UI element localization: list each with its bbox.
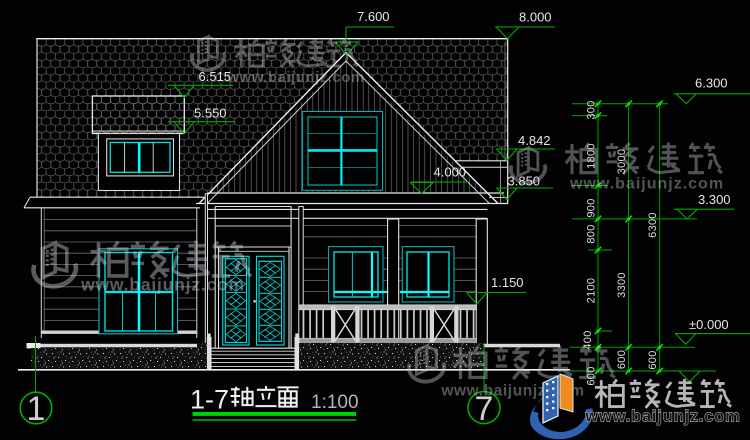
svg-text:6300: 6300	[647, 212, 659, 238]
svg-text:600: 600	[647, 350, 659, 369]
svg-text:1.150: 1.150	[491, 275, 524, 290]
svg-text:4.842: 4.842	[518, 133, 551, 148]
svg-text:±0.000: ±0.000	[689, 317, 729, 332]
svg-text:5.550: 5.550	[194, 105, 227, 120]
svg-text:3.300: 3.300	[698, 192, 731, 207]
svg-text:4.000: 4.000	[434, 165, 467, 180]
svg-text:1-7: 1-7	[190, 385, 229, 415]
svg-text:6.300: 6.300	[695, 75, 728, 90]
svg-text:www.baijunjz.com: www.baijunjz.com	[226, 69, 364, 86]
svg-text:www.baijunjz.com: www.baijunjz.com	[584, 408, 740, 426]
svg-text:3300: 3300	[616, 272, 628, 298]
svg-text:900: 900	[586, 198, 598, 217]
svg-text:www.baijunjz.com: www.baijunjz.com	[569, 176, 724, 193]
svg-text:8.000: 8.000	[519, 10, 552, 25]
svg-text:300: 300	[586, 100, 598, 119]
svg-text:2100: 2100	[586, 278, 598, 304]
svg-text:1:100: 1:100	[311, 392, 359, 413]
svg-text:7.600: 7.600	[357, 9, 390, 24]
svg-text:800: 800	[586, 224, 598, 243]
svg-text:1: 1	[27, 390, 46, 428]
svg-text:600: 600	[616, 350, 628, 369]
svg-text:www.baijunjz.com: www.baijunjz.com	[80, 275, 245, 295]
